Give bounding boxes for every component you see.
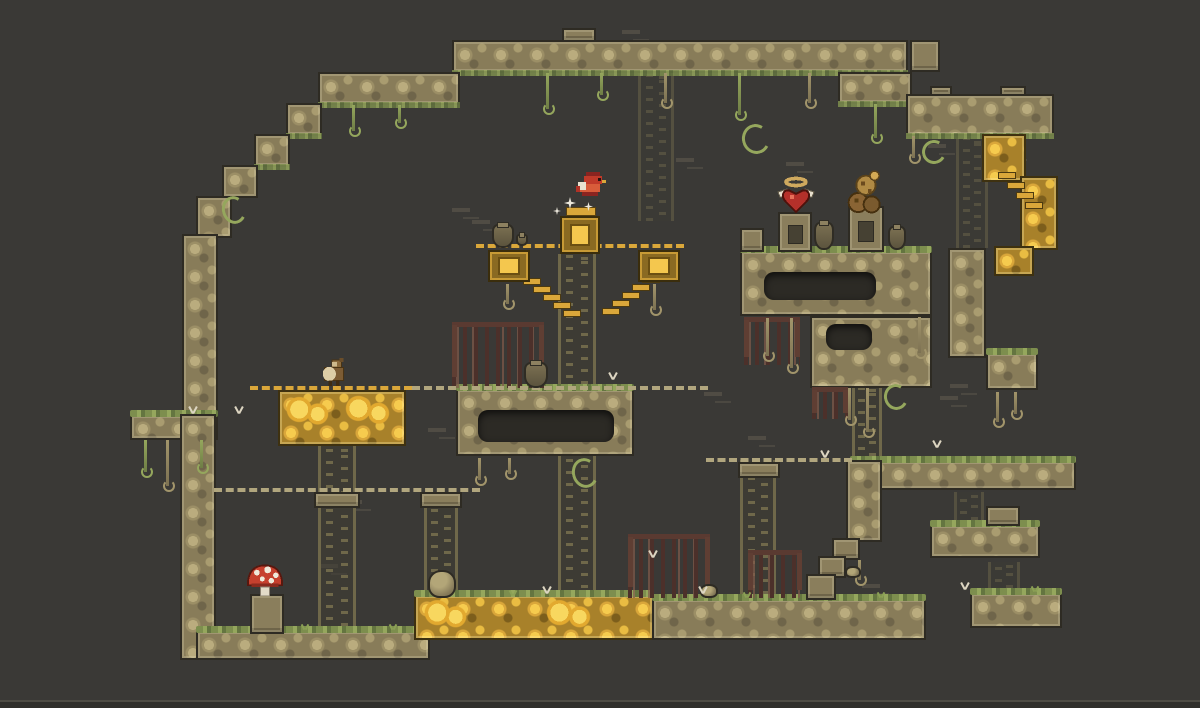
bottom-edge <box>0 700 1200 708</box>
coin-pile <box>286 396 330 426</box>
sparkle <box>553 207 561 215</box>
grass-sprout <box>608 370 618 380</box>
right-block <box>986 352 1038 390</box>
dash-line-mid <box>412 386 708 390</box>
hanging-vine <box>808 73 811 103</box>
game-canvas[interactable] <box>0 0 1200 708</box>
center-block-cavity <box>478 410 614 442</box>
shelf-spikes <box>1016 448 1056 461</box>
vine-curl <box>919 137 948 166</box>
grass-sprout <box>932 438 942 448</box>
hanging-vine <box>996 392 999 422</box>
hanging-vine <box>664 73 667 103</box>
hanging-vine <box>1014 392 1017 414</box>
center-capital-crown <box>566 207 596 216</box>
left-pillar-1-head <box>314 492 360 508</box>
right-gold-3 <box>994 246 1034 276</box>
right-step-3 <box>806 574 836 600</box>
right-wall-lower <box>846 460 882 542</box>
platform-mid-right <box>930 524 1040 558</box>
left-pillar-2-head <box>420 492 462 508</box>
hanging-vine <box>766 318 769 356</box>
left-capital <box>488 250 530 282</box>
coin-pile <box>344 394 392 426</box>
debris-mark <box>950 384 976 398</box>
right-band-bump-1 <box>930 86 952 96</box>
shelf-spikes <box>938 448 986 461</box>
floor-mid <box>652 598 926 640</box>
ceiling-right-step <box>838 72 912 104</box>
right-wall-mid <box>948 248 986 358</box>
grass-tuft <box>300 622 310 630</box>
urn <box>492 224 514 248</box>
hanging-vine <box>848 388 851 420</box>
ruin-block <box>986 506 1020 526</box>
treasure-pile-sprite[interactable] <box>844 168 884 214</box>
rc-block-a-cavity <box>764 272 876 300</box>
rc-block-b-cavity <box>826 324 872 350</box>
grass-sprout <box>648 548 658 558</box>
hanging-vine <box>866 388 869 432</box>
center-capital <box>560 216 600 254</box>
debris-mark <box>940 396 966 410</box>
debris-mark <box>704 392 730 406</box>
winged-heart-sprite[interactable] <box>774 176 818 216</box>
ceiling-step-3 <box>222 165 258 198</box>
hanging-vine <box>478 458 481 480</box>
debris-mark <box>786 162 812 176</box>
coin-pile <box>424 600 468 628</box>
right-topper <box>910 40 940 72</box>
grass-sprout <box>234 404 244 414</box>
grass-tuft <box>388 622 398 630</box>
grass-sprout <box>960 580 970 590</box>
hanging-vine <box>600 73 603 95</box>
boulder <box>845 566 861 578</box>
right-gold-2 <box>1020 176 1058 250</box>
vine-curl <box>739 121 774 157</box>
rc-corner-block <box>740 228 764 252</box>
grass-sprout <box>698 584 708 594</box>
hanging-vine <box>352 105 355 131</box>
ceiling-left <box>318 72 460 105</box>
mushroom-sprite[interactable] <box>244 560 286 596</box>
ceiling-step-1 <box>286 103 322 136</box>
bird-sprite[interactable] <box>574 170 608 200</box>
grass-tuft <box>742 590 752 598</box>
urn <box>814 222 834 250</box>
grass-sprout <box>188 404 198 414</box>
grass-sprout <box>820 448 830 458</box>
floor-pillar-head <box>738 462 780 478</box>
hanging-vine <box>144 440 147 472</box>
debris-mark <box>676 158 702 172</box>
ceiling-pillar <box>638 73 674 221</box>
grass-tuft <box>508 588 518 596</box>
right-band-bump-2 <box>1000 86 1026 96</box>
creature-sprite[interactable] <box>318 358 350 388</box>
hanging-vine <box>874 104 877 138</box>
rc-roots-b <box>812 387 848 419</box>
floor-left <box>196 630 430 660</box>
grass-tuft <box>876 590 886 598</box>
hanging-vine <box>200 440 203 468</box>
pillar-spikes <box>310 480 360 493</box>
ceiling-step-2 <box>254 134 290 167</box>
urn <box>888 226 906 250</box>
grass-sprout <box>542 584 552 594</box>
right-capital <box>638 250 680 282</box>
hanging-vine <box>166 440 169 486</box>
urn <box>524 362 548 388</box>
debris-mark <box>428 428 454 442</box>
grass-tuft <box>1030 584 1040 592</box>
rc-capital-1 <box>778 212 812 252</box>
hanging-vine <box>912 136 915 158</box>
hanging-chain <box>506 284 509 304</box>
hanging-vine <box>546 73 549 109</box>
hanging-chain <box>653 284 656 310</box>
left-pillar-1 <box>318 446 356 632</box>
floor-roots-2 <box>748 550 802 598</box>
coin-pile <box>545 600 593 628</box>
small-pot <box>516 234 528 246</box>
hanging-vine <box>738 73 741 115</box>
pillar-spikes <box>418 480 462 493</box>
hanging-vine <box>918 317 921 353</box>
boulder <box>428 570 456 598</box>
center-block-teeth <box>492 456 538 466</box>
ceiling-topper <box>562 28 596 42</box>
left-wall <box>182 234 218 418</box>
right-shelf <box>850 460 1076 490</box>
mushroom-pedestal <box>250 594 284 634</box>
right-band <box>906 94 1054 136</box>
hanging-vine <box>790 318 793 368</box>
pillar-spikes <box>736 448 780 461</box>
hanging-vine <box>398 105 401 123</box>
left-wall-lower <box>180 414 216 660</box>
ceiling-top <box>452 40 908 73</box>
platform-low-right <box>970 592 1062 628</box>
